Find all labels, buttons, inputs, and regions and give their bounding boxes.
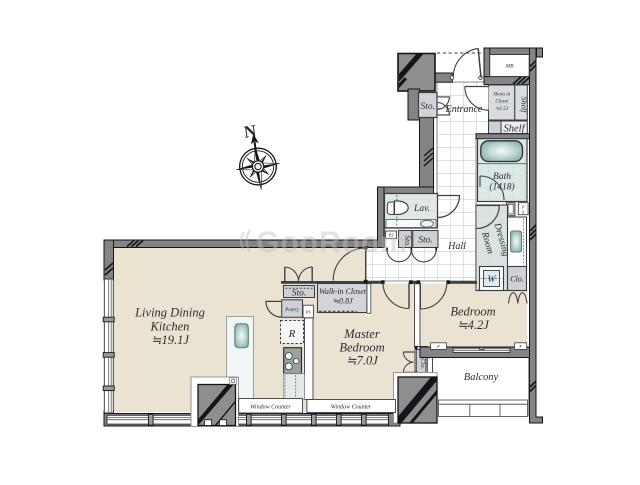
svg-text:Window Counter: Window Counter — [250, 405, 291, 411]
svg-text:Shelf: Shelf — [504, 124, 527, 135]
svg-text:GooRoom: GooRoom — [256, 226, 408, 259]
svg-text:Hall: Hall — [447, 241, 466, 252]
svg-text:W: W — [488, 275, 497, 285]
svg-text:≒0.8J: ≒0.8J — [332, 297, 353, 306]
svg-text:Sto.: Sto. — [418, 236, 433, 246]
svg-text:MB: MB — [505, 64, 515, 70]
svg-text:Bath: Bath — [493, 172, 511, 182]
svg-text:Clo.: Clo. — [510, 275, 524, 284]
svg-text:R: R — [288, 328, 296, 340]
svg-text:Entrance: Entrance — [445, 104, 483, 115]
svg-text:Sto.: Sto. — [421, 102, 436, 112]
svg-text:Shelf: Shelf — [520, 97, 529, 115]
svg-text:Window Counter: Window Counter — [331, 405, 372, 411]
svg-text:Clo.: Clo. — [419, 358, 426, 369]
svg-text:Pantry: Pantry — [284, 308, 299, 313]
svg-text:≒1.5J: ≒1.5J — [495, 106, 508, 112]
svg-text:F: F — [518, 344, 522, 349]
svg-text:Living Dining: Living Dining — [134, 306, 205, 320]
svg-text:≒4.2J: ≒4.2J — [457, 318, 490, 332]
svg-text:Closet: Closet — [495, 100, 508, 105]
svg-text:Walk-in Closet: Walk-in Closet — [319, 287, 367, 296]
svg-text:Master: Master — [343, 327, 380, 341]
svg-text:Kitchen: Kitchen — [150, 320, 190, 334]
svg-text:Bedroom: Bedroom — [450, 305, 495, 319]
svg-text:≒19.1J: ≒19.1J — [151, 333, 190, 347]
svg-text:Balcony: Balcony — [464, 372, 499, 383]
svg-text:F: F — [436, 344, 440, 349]
svg-text:Lav.: Lav. — [413, 204, 430, 214]
svg-text:≒7.0J: ≒7.0J — [346, 354, 379, 368]
svg-text:Bedroom: Bedroom — [339, 341, 384, 355]
svg-text:Sto.: Sto. — [292, 289, 307, 299]
svg-text:Shoes in: Shoes in — [493, 93, 510, 98]
svg-text:PS: PS — [305, 310, 312, 315]
